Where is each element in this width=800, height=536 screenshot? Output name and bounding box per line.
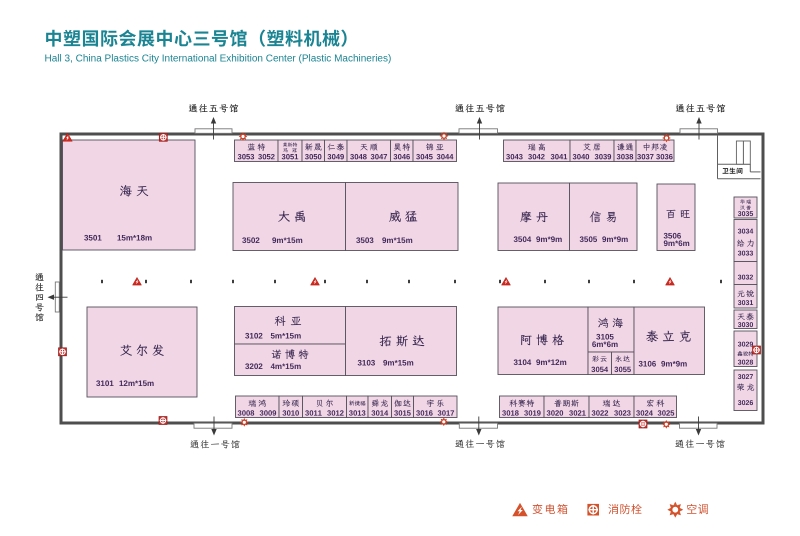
svg-text:Hall 3, China Plastics City In: Hall 3, China Plastics City Internationa… (45, 54, 392, 65)
